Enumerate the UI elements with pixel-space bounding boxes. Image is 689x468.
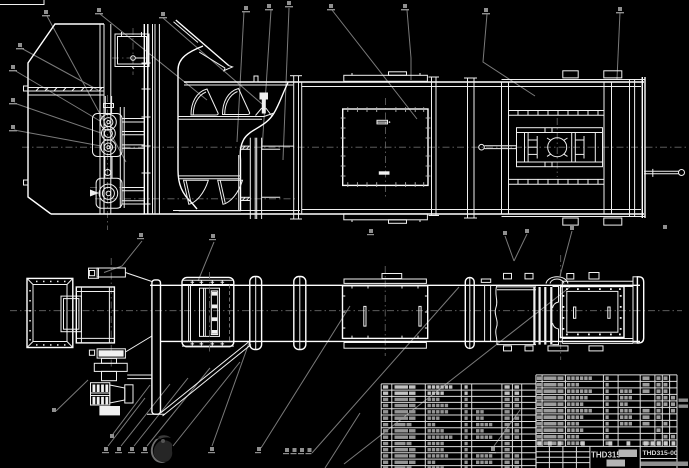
- svg-text:THD315: THD315: [591, 451, 621, 460]
- svg-text:THD315-00: THD315-00: [643, 450, 678, 457]
